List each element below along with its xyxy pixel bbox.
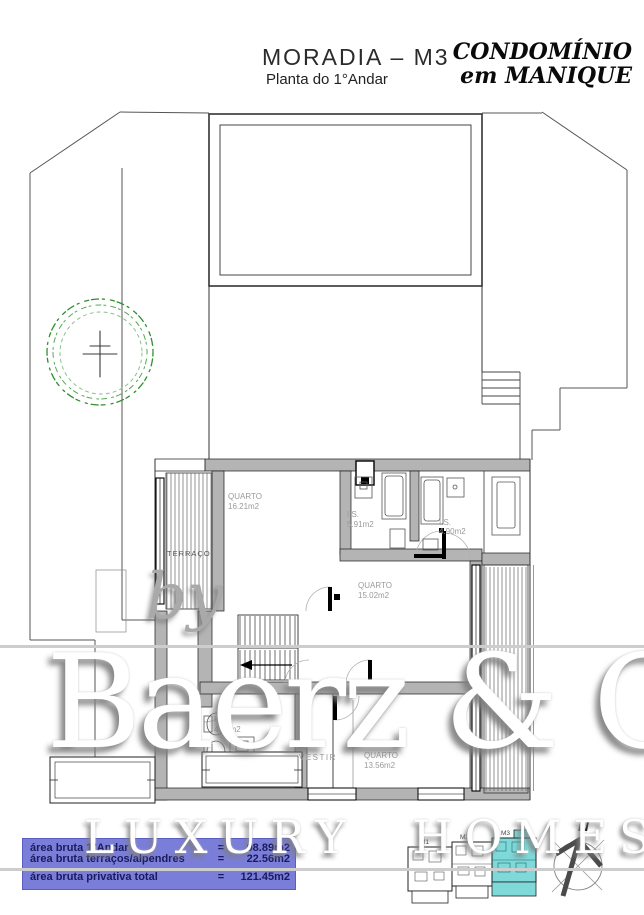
room-area-is3: 4.62m2 [214,725,241,734]
room-label-vestir: VESTIR [299,753,337,762]
key-plan-unit2-label: M2 [460,834,469,841]
floor-plan-drawing: QUARTO 16.21m2 I.S. 5.91m2 I.S. 4.90m2 Q… [0,0,644,915]
brand-line2: em MANIQUE [453,64,632,88]
terrace-label: TERRAÇO [167,549,211,558]
vent-stack [356,461,374,485]
area-table: área bruta 1°Andar = 98.89m2 área bruta … [22,838,296,890]
key-plan: M1 M2 M3 [408,830,536,903]
room-area-is1: 5.91m2 [347,520,374,529]
room-label-quarto3: QUARTO [364,751,398,760]
floor-plan-page: QUARTO 16.21m2 I.S. 5.91m2 I.S. 4.90m2 Q… [0,0,644,915]
key-plan-unit3-label: M3 [501,830,510,837]
exterior-steps [482,372,520,459]
north-label: N [578,818,590,835]
room-area-is2: 4.90m2 [439,527,466,536]
room-label-is3: I.S. [214,715,226,724]
terrace-left [156,473,212,609]
room-area-quarto1: 16.21m2 [228,502,260,511]
area-label: área bruta privativa total [30,871,214,883]
equals-sign: = [214,853,228,865]
tree-symbol [47,299,153,405]
room-label-quarto1: QUARTO [228,492,262,501]
area-row-total: área bruta privativa total = 121.45m2 [30,871,290,883]
pool-outline [209,114,482,459]
area-value: 121.45m2 [228,871,290,883]
site-boundary-lines [30,112,627,757]
room-label-is1: I.S. [347,510,359,519]
brand-logo: CONDOMÍNIO em MANIQUE [453,40,632,88]
area-value: 22.56m2 [228,853,290,865]
room-label-quarto2: QUARTO [358,581,392,590]
equals-sign: = [214,871,228,883]
room-area-quarto2: 15.02m2 [358,591,390,600]
room-area-quarto3: 13.56m2 [364,761,396,770]
area-label: área bruta terraços/alpendres [30,853,214,865]
key-plan-unit1-label: M1 [420,839,429,846]
room-label-is2: I.S. [439,518,451,527]
page-subtitle: Planta do 1°Andar [266,71,388,88]
page-title: MORADIA – M3 [262,44,450,71]
brand-line1: CONDOMÍNIO [453,40,632,64]
north-compass: N [552,818,604,896]
terrace-right [472,565,528,793]
area-row-terraces: área bruta terraços/alpendres = 22.56m2 [30,853,290,865]
